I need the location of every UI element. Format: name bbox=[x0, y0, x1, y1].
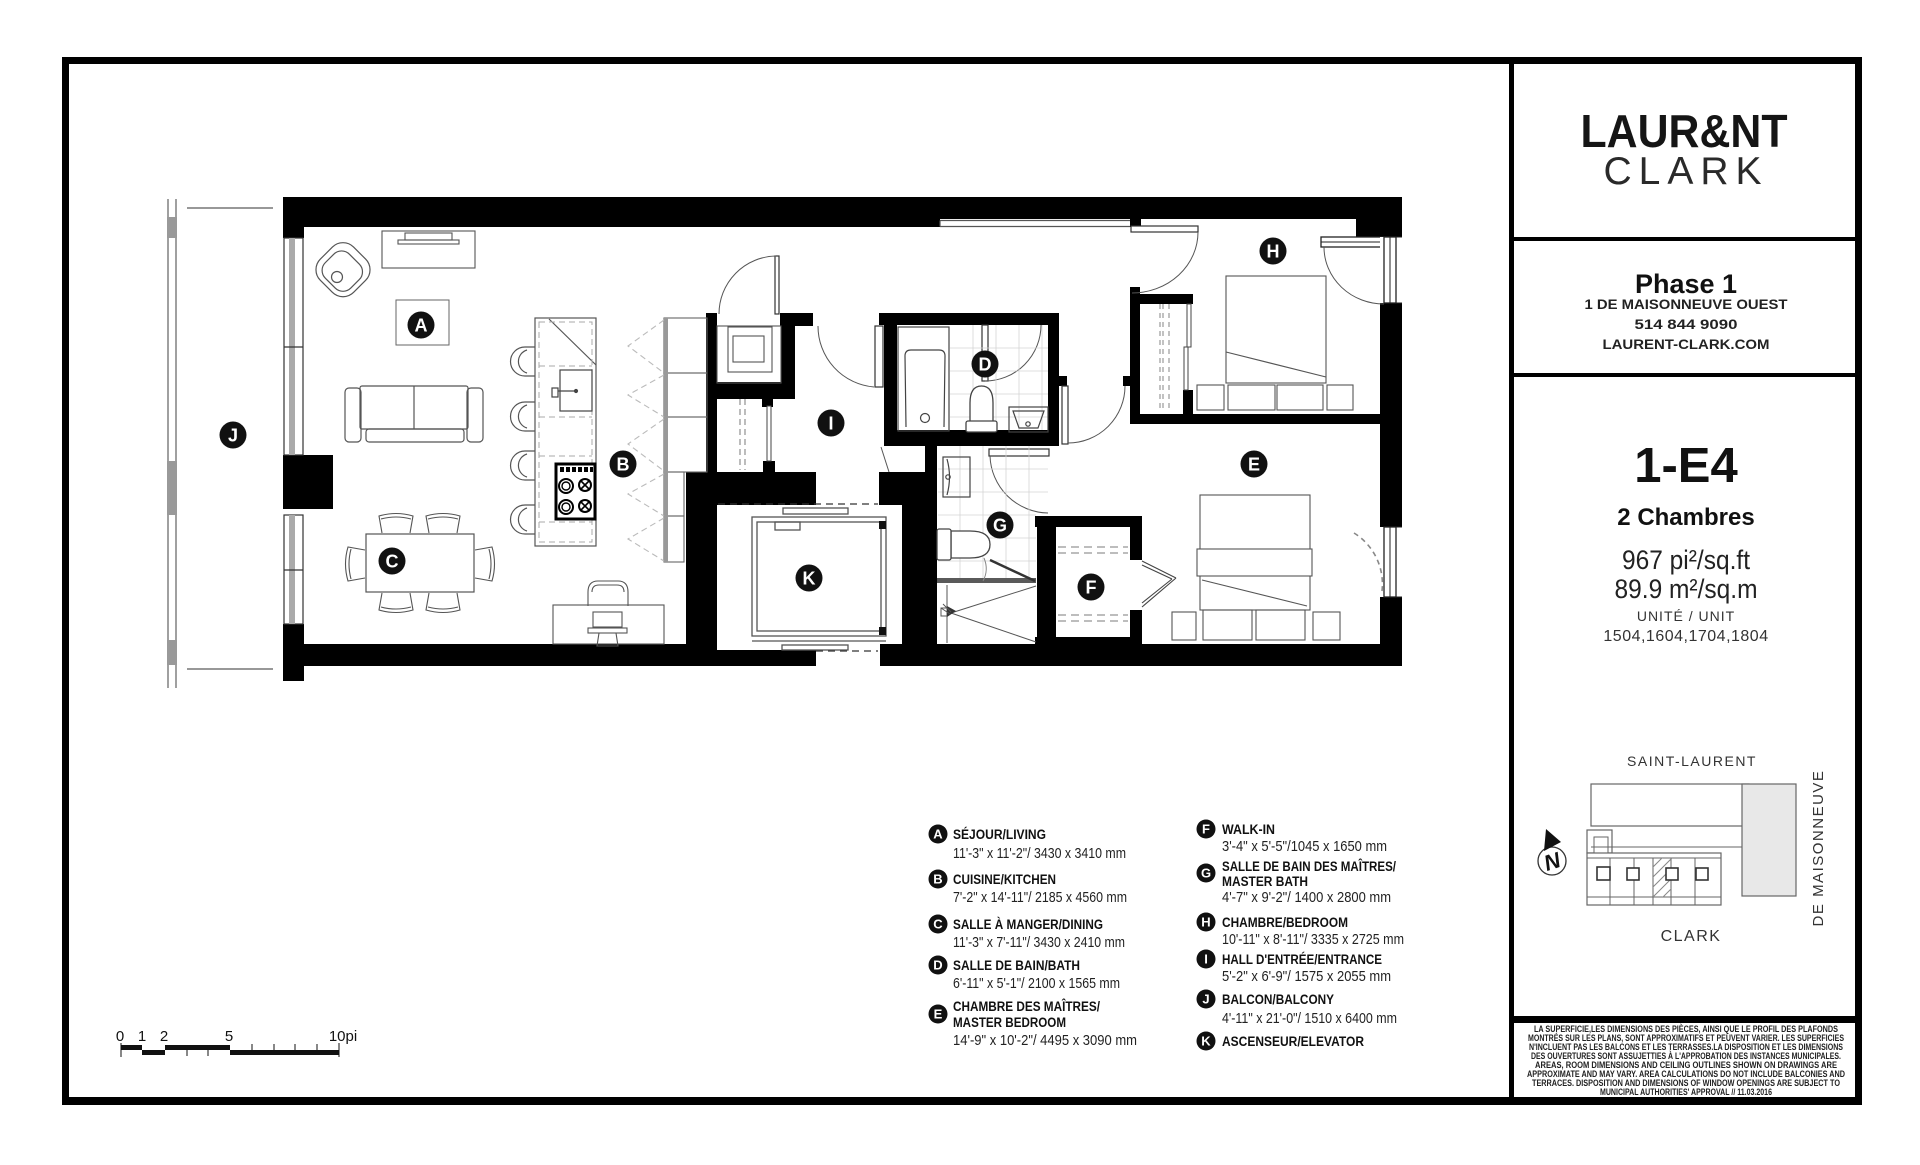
svg-text:5: 5 bbox=[225, 1028, 233, 1045]
svg-text:CHAMBRE/BEDROOM: CHAMBRE/BEDROOM bbox=[1222, 915, 1348, 930]
svg-text:A: A bbox=[415, 316, 428, 336]
svg-text:E: E bbox=[1248, 455, 1260, 475]
svg-text:Phase 1: Phase 1 bbox=[1635, 269, 1737, 299]
svg-text:D: D bbox=[933, 958, 942, 973]
svg-text:0: 0 bbox=[116, 1028, 124, 1045]
svg-text:BALCON/BALCONY: BALCON/BALCONY bbox=[1222, 992, 1334, 1007]
svg-text:E: E bbox=[934, 1007, 943, 1022]
svg-text:K: K bbox=[1201, 1034, 1211, 1049]
svg-text:SALLE DE BAIN DES MAÎTRES/: SALLE DE BAIN DES MAÎTRES/ bbox=[1222, 859, 1396, 874]
svg-text:H: H bbox=[1201, 915, 1210, 930]
svg-text:F: F bbox=[1086, 578, 1097, 598]
svg-text:2 Chambres: 2 Chambres bbox=[1617, 504, 1754, 531]
svg-text:4'-11" x 21'-0"/ 1510 x 6400 m: 4'-11" x 21'-0"/ 1510 x 6400 mm bbox=[1222, 1010, 1397, 1027]
svg-text:SAINT-LAURENT: SAINT-LAURENT bbox=[1627, 753, 1757, 769]
svg-text:514 844 9090: 514 844 9090 bbox=[1635, 317, 1738, 332]
svg-text:MASTER BEDROOM: MASTER BEDROOM bbox=[953, 1015, 1066, 1030]
svg-text:A: A bbox=[933, 827, 943, 842]
svg-text:HALL D'ENTRÉE/ENTRANCE: HALL D'ENTRÉE/ENTRANCE bbox=[1222, 952, 1382, 967]
svg-text:10'-11" x 8'-11"/ 3335 x 2725: 10'-11" x 8'-11"/ 3335 x 2725 mm bbox=[1222, 931, 1404, 948]
svg-text:6'-11" x 5'-1"/ 2100 x 1565 mm: 6'-11" x 5'-1"/ 2100 x 1565 mm bbox=[953, 975, 1120, 992]
svg-text:MUNICIPAL AUTHORITIES' APPROVA: MUNICIPAL AUTHORITIES' APPROVAL // 11.03… bbox=[1600, 1087, 1772, 1097]
svg-text:CHAMBRE DES MAÎTRES/: CHAMBRE DES MAÎTRES/ bbox=[953, 999, 1100, 1014]
svg-text:C: C bbox=[386, 552, 399, 572]
svg-text:1504,1604,1704,1804: 1504,1604,1704,1804 bbox=[1603, 628, 1768, 645]
svg-text:WALK-IN: WALK-IN bbox=[1222, 822, 1275, 837]
svg-text:14'-9" x 10'-2"/ 4495 x 3090 m: 14'-9" x 10'-2"/ 4495 x 3090 mm bbox=[953, 1032, 1137, 1049]
svg-text:B: B bbox=[617, 455, 630, 475]
svg-text:UNITÉ / UNIT: UNITÉ / UNIT bbox=[1637, 608, 1735, 624]
svg-text:H: H bbox=[1267, 242, 1280, 262]
svg-text:4'-7" x 9'-2"/ 1400 x 2800 mm: 4'-7" x 9'-2"/ 1400 x 2800 mm bbox=[1222, 889, 1391, 906]
svg-text:J: J bbox=[1202, 992, 1209, 1007]
svg-text:D: D bbox=[979, 355, 992, 375]
svg-text:7'-2" x 14'-11"/ 2185 x 4560 m: 7'-2" x 14'-11"/ 2185 x 4560 mm bbox=[953, 889, 1127, 906]
svg-text:11'-3" x 7'-11"/ 3430 x 2410 m: 11'-3" x 7'-11"/ 3430 x 2410 mm bbox=[953, 934, 1125, 951]
svg-text:3'-4" x 5'-5"/1045 x 1650 mm: 3'-4" x 5'-5"/1045 x 1650 mm bbox=[1222, 838, 1387, 855]
svg-text:J: J bbox=[228, 426, 238, 446]
svg-text:CLARK: CLARK bbox=[1661, 928, 1722, 945]
svg-text:1-E4: 1-E4 bbox=[1634, 439, 1738, 493]
svg-text:K: K bbox=[803, 569, 816, 589]
svg-text:SALLE DE BAIN/BATH: SALLE DE BAIN/BATH bbox=[953, 958, 1080, 973]
svg-text:SÉJOUR/LIVING: SÉJOUR/LIVING bbox=[953, 827, 1046, 842]
svg-text:ASCENSEUR/ELEVATOR: ASCENSEUR/ELEVATOR bbox=[1222, 1034, 1364, 1049]
svg-text:967 pi²/sq.ft: 967 pi²/sq.ft bbox=[1622, 545, 1750, 575]
svg-text:1: 1 bbox=[138, 1028, 146, 1045]
svg-text:LAURENT-CLARK.COM: LAURENT-CLARK.COM bbox=[1603, 337, 1770, 352]
svg-text:5'-2" x 6'-9"/ 1575 x 2055 mm: 5'-2" x 6'-9"/ 1575 x 2055 mm bbox=[1222, 968, 1391, 985]
svg-text:I: I bbox=[1204, 952, 1208, 967]
svg-text:2: 2 bbox=[160, 1028, 168, 1045]
svg-text:MASTER BATH: MASTER BATH bbox=[1222, 874, 1308, 889]
svg-text:G: G bbox=[993, 516, 1007, 536]
svg-text:I: I bbox=[828, 414, 833, 434]
svg-text:CUISINE/KITCHEN: CUISINE/KITCHEN bbox=[953, 872, 1056, 887]
svg-text:SALLE À MANGER/DINING: SALLE À MANGER/DINING bbox=[953, 917, 1103, 932]
svg-text:G: G bbox=[1201, 866, 1211, 881]
svg-text:1 DE MAISONNEUVE OUEST: 1 DE MAISONNEUVE OUEST bbox=[1585, 297, 1789, 312]
svg-text:B: B bbox=[933, 872, 942, 887]
svg-text:DE MAISONNEUVE: DE MAISONNEUVE bbox=[1810, 770, 1827, 927]
svg-text:CLARK: CLARK bbox=[1603, 150, 1768, 193]
svg-text:10pi: 10pi bbox=[329, 1028, 357, 1045]
svg-text:89.9 m²/sq.m: 89.9 m²/sq.m bbox=[1615, 574, 1758, 604]
svg-text:F: F bbox=[1202, 822, 1210, 837]
svg-text:11'-3" x 11'-2"/ 3430 x 3410 m: 11'-3" x 11'-2"/ 3430 x 3410 mm bbox=[953, 845, 1126, 862]
svg-text:C: C bbox=[933, 917, 943, 932]
